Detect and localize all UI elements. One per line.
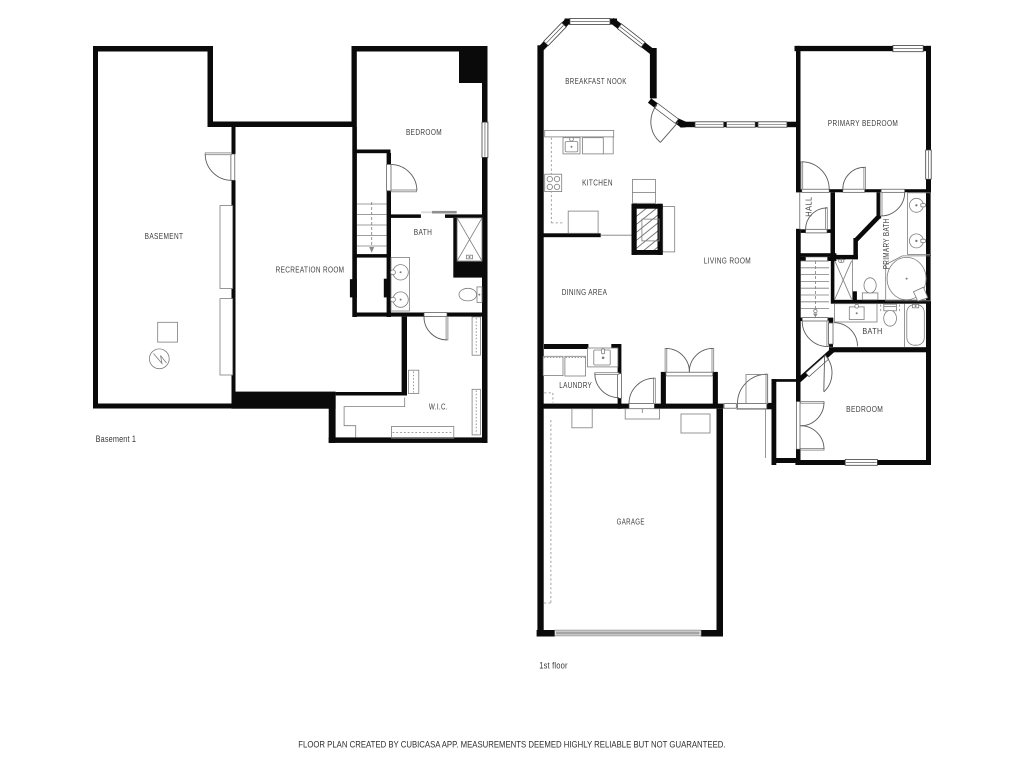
svg-text:GARAGE: GARAGE	[617, 517, 645, 527]
svg-text:W.I.C.: W.I.C.	[429, 401, 448, 411]
svg-text:BREAKFAST NOOK: BREAKFAST NOOK	[565, 76, 627, 86]
svg-text:BASEMENT: BASEMENT	[145, 231, 184, 241]
svg-text:FLOOR PLAN CREATED BY CUBICASA: FLOOR PLAN CREATED BY CUBICASA APP. MEAS…	[298, 739, 725, 749]
svg-text:BEDROOM: BEDROOM	[406, 127, 442, 137]
svg-text:PRIMARY BATH: PRIMARY BATH	[881, 218, 891, 269]
svg-text:LAUNDRY: LAUNDRY	[559, 380, 592, 390]
svg-text:LIVING ROOM: LIVING ROOM	[704, 256, 751, 266]
svg-text:DINING AREA: DINING AREA	[562, 287, 608, 297]
svg-text:1st floor: 1st floor	[539, 661, 568, 672]
svg-text:PRIMARY BEDROOM: PRIMARY BEDROOM	[828, 118, 898, 128]
svg-text:BATH: BATH	[414, 227, 433, 237]
svg-text:Basement 1: Basement 1	[96, 434, 137, 445]
svg-text:HALL: HALL	[804, 196, 814, 216]
svg-text:BATH: BATH	[862, 326, 882, 336]
svg-text:RECREATION ROOM: RECREATION ROOM	[276, 265, 345, 275]
svg-text:BEDROOM: BEDROOM	[846, 404, 883, 414]
svg-text:KITCHEN: KITCHEN	[582, 178, 613, 188]
